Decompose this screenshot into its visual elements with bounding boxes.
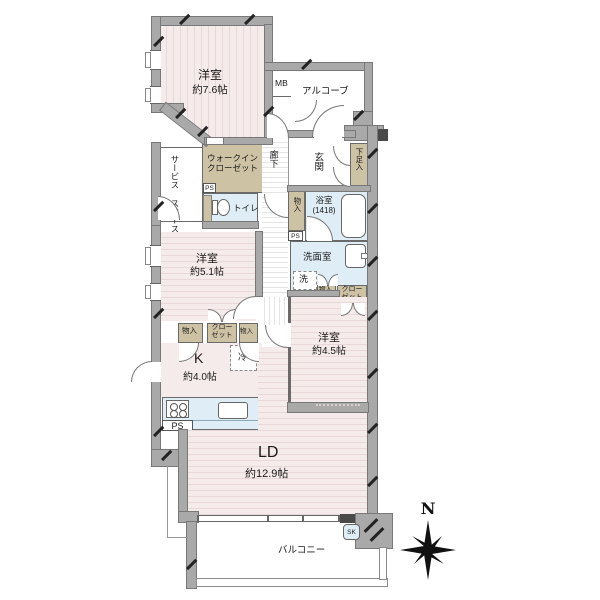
window-76-lower-sill	[145, 88, 151, 102]
balcony-railing-bottom	[196, 578, 388, 587]
pipe-space-hall: PS	[288, 231, 303, 241]
hallway-label: 廊下	[268, 150, 279, 168]
shoe-cabinet-label: 下足入	[354, 148, 363, 171]
ld-window-mullion-2	[267, 515, 269, 522]
service-space-label: サービス スペース	[168, 155, 180, 233]
closet-line1: クロー	[212, 324, 233, 331]
wall-45-left	[288, 297, 291, 323]
closet-line2: ゼット	[212, 332, 233, 339]
room-76-door	[267, 113, 289, 138]
room-size: 約5.1帖	[190, 267, 224, 278]
window-76-lower	[150, 86, 161, 104]
balcony-label: バルコニー	[278, 545, 325, 556]
washing-machine-label: 洗	[299, 274, 308, 285]
room-western-4-5-label: 洋室 約4.5帖	[291, 332, 367, 358]
kitchen-sink	[218, 402, 248, 419]
compass-north-label: N	[421, 499, 436, 518]
wall-45-ld-dashed	[316, 404, 360, 406]
boundary-line-vertical	[167, 466, 168, 538]
closet-line1: クロー	[342, 286, 363, 293]
window-51-upper-sill	[145, 247, 151, 265]
bathtub	[341, 194, 366, 238]
pipe-space-kitchen: PS	[162, 420, 193, 431]
window-51-lower-sill	[145, 285, 151, 299]
room-size: 約7.6帖	[192, 84, 228, 96]
room-name: 洋室	[318, 332, 340, 344]
wall-ld-bottom-left	[179, 512, 198, 522]
closet-51-label: クロー ゼット	[207, 324, 237, 339]
ld-window-mullion-3	[302, 515, 304, 522]
wic-opening	[206, 138, 224, 144]
wic-line1: ウォークイン	[207, 153, 258, 163]
wall-alcove-top	[265, 63, 372, 70]
balcony-railing-right	[379, 547, 387, 580]
toilet-bowl	[217, 199, 230, 216]
toilet-counter	[204, 196, 211, 221]
ps-label: PS	[171, 421, 183, 431]
bath-name: 浴室	[315, 195, 332, 205]
ps-label: PS	[291, 233, 300, 240]
boundary-line-horizontal	[167, 537, 188, 538]
column-entry	[376, 129, 388, 141]
ld-window-mullion-1	[197, 515, 199, 522]
washroom-label: 洗面室	[303, 252, 332, 263]
compass-rose: N	[396, 496, 460, 596]
wall-alcove-genkan-left	[288, 131, 313, 137]
wall-45-left-lower	[288, 347, 291, 403]
meter-box-label: MB	[275, 78, 288, 88]
room-western-7-6-label: 洋室 約7.6帖	[170, 68, 250, 97]
sk-label: SK	[347, 529, 356, 536]
wall-top	[152, 17, 272, 25]
window-51-upper	[150, 245, 161, 267]
slop-sink: SK	[343, 524, 360, 540]
storage-k-right-label: 物入	[240, 328, 253, 336]
hallway-lower	[260, 297, 288, 325]
balcony-wall-left	[187, 522, 196, 588]
room-western-5-1-label: 洋室 約5.1帖	[164, 253, 250, 279]
window-51-lower	[150, 283, 161, 301]
window-76-upper-sill	[145, 52, 151, 68]
wall-alcove-right	[365, 63, 372, 116]
wall-bath-top	[288, 186, 370, 191]
stove	[166, 400, 189, 418]
room-size: 約4.5帖	[312, 346, 346, 357]
bath-size: (1418)	[312, 206, 335, 215]
ld-window-band	[197, 515, 340, 522]
ps-label: PS	[205, 185, 214, 192]
storage-hall-label: 物入	[292, 197, 301, 212]
wall-right-outer	[368, 126, 377, 516]
room-name: 洋室	[196, 253, 218, 265]
alcove-label: アルコーブ	[302, 86, 349, 97]
compass-star	[400, 520, 456, 580]
kitchen-service-door-gap	[151, 362, 161, 382]
room-name: 洋室	[198, 68, 222, 82]
wic-line2: クローゼット	[207, 163, 258, 173]
window-76-upper	[150, 50, 161, 70]
entrance-label: 玄関	[312, 152, 323, 171]
floor-plan: 洋室 約7.6帖 MB アルコーブ ウォークイン クローゼット PS 廊下 玄関…	[0, 0, 600, 600]
service-line1: サービス	[170, 155, 180, 189]
kitchen-size-label: 約4.0帖	[183, 372, 217, 384]
wall-51-right	[256, 232, 262, 296]
bathroom-label: 浴室 (1418)	[306, 195, 342, 215]
wall-washroom-bottom	[288, 291, 339, 296]
wall-ld-left	[179, 430, 187, 519]
living-dining-size-label: 約12.9帖	[245, 468, 288, 481]
kitchen-service-door	[131, 361, 152, 382]
storage-k-left-label: 物入	[182, 327, 197, 336]
pipe-space-wic: PS	[203, 183, 216, 193]
wall-toilet-51	[203, 222, 258, 228]
toilet-label: トイレ	[233, 203, 259, 213]
walk-in-closet-label: ウォークイン クローゼット	[203, 153, 262, 173]
wall-alcove-genkan-right	[343, 131, 355, 137]
living-dining-label: LD	[258, 444, 278, 463]
